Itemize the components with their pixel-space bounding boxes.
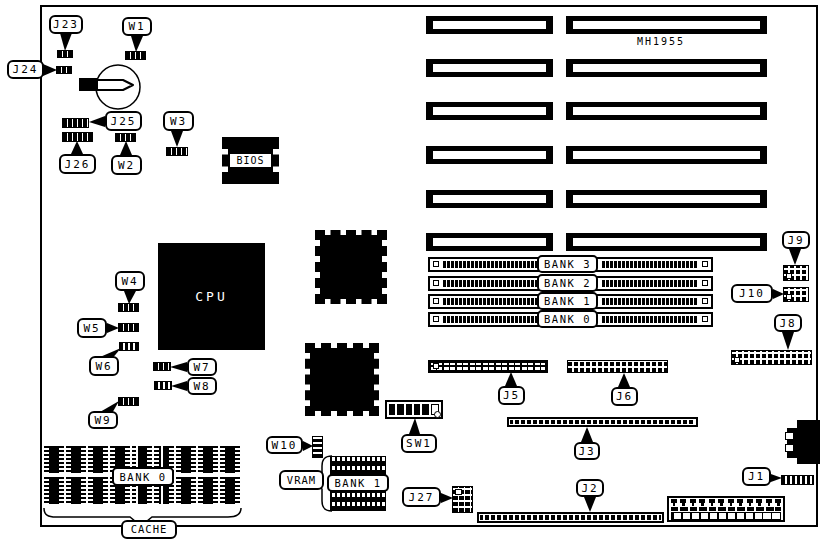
connector-j5 xyxy=(428,360,548,373)
simm-bank3-label: BANK 3 xyxy=(537,255,598,273)
label-j3: J3 xyxy=(574,442,600,460)
label-j27: J27 xyxy=(402,487,441,507)
jumper-w7 xyxy=(153,362,171,371)
isa-slot xyxy=(566,59,767,77)
bios-chip: BIOS xyxy=(222,137,279,184)
jumper-w10 xyxy=(312,436,323,458)
bios-label: BIOS xyxy=(228,152,273,169)
isa-slot xyxy=(566,102,767,120)
keyboard-connector-notch xyxy=(785,444,794,452)
connector-j27 xyxy=(452,486,473,513)
cpu-label: CPU xyxy=(195,289,227,304)
isa-slot xyxy=(566,233,767,251)
label-j8: J8 xyxy=(774,314,802,332)
connector-j10 xyxy=(783,287,809,302)
jumper-w1 xyxy=(125,51,146,60)
label-vram: VRAM xyxy=(279,470,324,490)
label-w1: W1 xyxy=(122,17,152,36)
label-sw1: SW1 xyxy=(401,434,437,453)
jumper-j24 xyxy=(56,66,72,74)
power-connector xyxy=(667,496,785,522)
simm-bank0-label: BANK 0 xyxy=(537,310,598,328)
simm-bank2-label: BANK 2 xyxy=(537,274,598,292)
isa-slot xyxy=(566,190,767,208)
dip-switch-sw1 xyxy=(385,400,443,419)
qfp-chip xyxy=(315,230,387,304)
cpu-chip: CPU xyxy=(158,243,265,350)
label-w8: W8 xyxy=(187,377,217,395)
label-j24: J24 xyxy=(7,60,44,79)
label-w10: W10 xyxy=(266,436,303,454)
isa-slot xyxy=(426,190,553,208)
label-w3: W3 xyxy=(163,111,194,131)
isa-slot xyxy=(426,59,553,77)
connector-j8 xyxy=(731,350,812,365)
jumper-j25 xyxy=(62,118,89,128)
motherboard-diagram: MH1955 BANK 3 BANK 2 BANK 1 BANK 0 xyxy=(0,0,825,547)
jumper-w2 xyxy=(115,133,136,142)
label-j26: J26 xyxy=(59,154,96,174)
isa-slot xyxy=(426,233,553,251)
label-w4: W4 xyxy=(115,271,145,291)
label-j9: J9 xyxy=(782,231,810,249)
connector-j2 xyxy=(477,512,664,523)
keyboard-connector xyxy=(797,420,820,464)
label-j5: J5 xyxy=(498,386,525,405)
jumper-w6 xyxy=(119,342,139,351)
simm-bank1-label: BANK 1 xyxy=(537,292,598,310)
connector-j3 xyxy=(507,417,698,427)
label-j25: J25 xyxy=(105,111,142,131)
jumper-w8 xyxy=(154,381,172,390)
isa-slot xyxy=(426,146,553,164)
label-cache: CACHE xyxy=(121,520,177,539)
isa-slot xyxy=(566,16,767,34)
connector-j1 xyxy=(781,475,814,485)
isa-slot xyxy=(566,146,767,164)
label-w2: W2 xyxy=(111,155,142,175)
label-j6: J6 xyxy=(611,387,638,406)
label-j23: J23 xyxy=(49,15,83,34)
label-w9: W9 xyxy=(88,411,118,429)
label-w7: W7 xyxy=(187,358,217,376)
cache-bank0-label: BANK 0 xyxy=(112,467,174,486)
label-j1: J1 xyxy=(742,467,771,486)
label-w5: W5 xyxy=(77,318,107,338)
jumper-w9 xyxy=(118,397,139,406)
jumper-w5 xyxy=(118,323,139,332)
keyboard-connector-notch xyxy=(785,432,794,440)
vram-bank1-label: BANK 1 xyxy=(327,474,389,492)
isa-slot xyxy=(426,102,553,120)
jumper-j23 xyxy=(57,50,73,58)
qfp-chip xyxy=(305,343,379,416)
label-j10: J10 xyxy=(731,284,773,303)
connector-j6 xyxy=(567,360,668,373)
isa-slot xyxy=(426,16,553,34)
jumper-j26 xyxy=(62,132,93,142)
connector-j9 xyxy=(783,265,809,281)
label-j2: J2 xyxy=(576,479,604,497)
jumper-w4 xyxy=(118,303,139,312)
part-number: MH1955 xyxy=(637,36,717,47)
jumper-w3 xyxy=(166,147,188,156)
label-w6: W6 xyxy=(89,356,119,376)
